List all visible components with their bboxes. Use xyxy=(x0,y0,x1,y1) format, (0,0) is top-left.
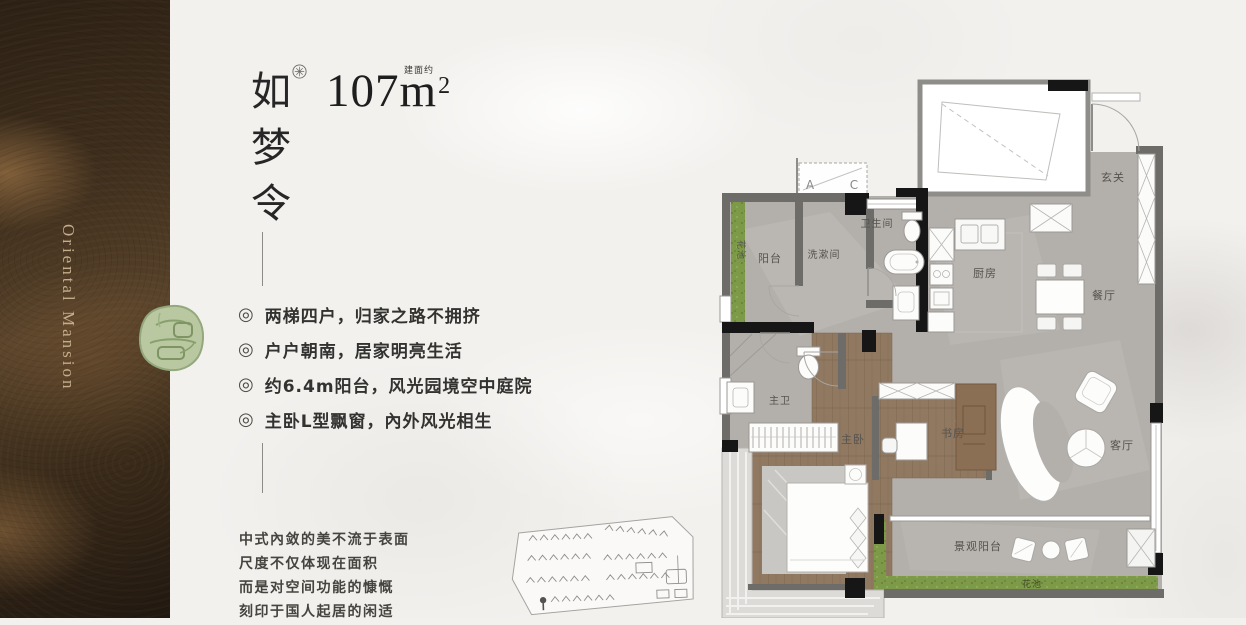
room-label-washroom: 洗漱间 xyxy=(808,248,841,261)
coffee-table xyxy=(1067,429,1105,467)
feature-bullet-icon: ◎ xyxy=(238,376,254,394)
room-label-balcony: 阳台 xyxy=(758,251,782,265)
brand-vertical-text: Oriental Mansion xyxy=(58,224,78,391)
room-label-flower-bed-bottom: 花池 xyxy=(1022,578,1042,590)
feature-item: ◎ 主卧L型飘窗，內外风光相生 xyxy=(238,402,533,437)
divider-line-top xyxy=(262,232,263,286)
feature-bullet-icon: ◎ xyxy=(238,411,254,429)
room-label-bathroom: 卫生间 xyxy=(861,217,894,230)
feature-item: ◎ 两梯四户，归家之路不拥挤 xyxy=(238,297,533,332)
tagline-line: 尺度不仅体现在面积 xyxy=(239,552,410,576)
foyer-cabinet xyxy=(1138,154,1155,284)
tagline-line: 刻印于国人起居的闲适 xyxy=(239,600,410,624)
nightstand xyxy=(845,465,866,484)
area-superscript: 2 xyxy=(438,73,451,99)
feature-bullet-icon: ◎ xyxy=(238,306,254,324)
registered-seal-icon xyxy=(292,64,307,83)
feature-text: 主卧L型飘窗，內外风光相生 xyxy=(265,407,493,432)
room-label-flower-bed-left: 花池 xyxy=(735,240,747,260)
feature-item: ◎ 约6.4m阳台，风光园境空中庭院 xyxy=(238,367,533,402)
tagline-line: 而是对空间功能的慷慨 xyxy=(239,576,410,600)
area-prefix-note: 建面约 xyxy=(404,63,434,76)
feature-list: ◎ 两梯四户，归家之路不拥挤 ◎ 户户朝南，居家明亮生活 ◎ 约6.4m阳台，风… xyxy=(238,297,533,437)
balcony-stools xyxy=(1011,537,1089,562)
feature-text: 约6.4m阳台，风光园境空中庭院 xyxy=(265,372,533,397)
feature-text: 户户朝南，居家明亮生活 xyxy=(265,337,463,362)
stair-core xyxy=(920,82,1088,194)
feature-bullet-icon: ◎ xyxy=(238,341,254,359)
room-label-study: 书房 xyxy=(941,427,965,440)
floor-plan: A C xyxy=(700,55,1180,618)
ac-label-c: C xyxy=(850,178,858,192)
ac-platform: A C xyxy=(797,158,867,196)
room-label-kitchen: 厨房 xyxy=(973,267,997,280)
balcony-ac-unit xyxy=(1127,529,1155,567)
feature-text: 两梯四户，归家之路不拥挤 xyxy=(265,302,481,327)
entry-door xyxy=(1092,93,1140,151)
room-label-dining: 餐厅 xyxy=(1092,288,1116,302)
room-label-foyer: 玄关 xyxy=(1101,170,1125,184)
site-plan-sketch xyxy=(504,511,706,625)
flower-bed-strip-left xyxy=(731,201,745,329)
room-label-living: 客厅 xyxy=(1110,438,1134,452)
feature-item: ◎ 户户朝南，居家明亮生活 xyxy=(238,332,533,367)
room-label-master-bedroom: 主卧 xyxy=(841,433,865,446)
ac-label-a: A xyxy=(806,178,815,192)
room-label-master-bath: 主卫 xyxy=(769,395,791,407)
tagline: 中式內敛的美不流于表面 尺度不仅体现在面积 而是对空间功能的慷慨 刻印于国人起居… xyxy=(239,528,410,624)
tagline-line: 中式內敛的美不流于表面 xyxy=(239,528,410,552)
room-label-view-balcony: 景观阳台 xyxy=(954,539,1002,553)
listing-title: 如梦令 xyxy=(238,70,296,238)
jade-seal-icon xyxy=(136,303,208,377)
divider-line-bottom xyxy=(262,443,263,493)
wardrobe xyxy=(749,423,838,452)
